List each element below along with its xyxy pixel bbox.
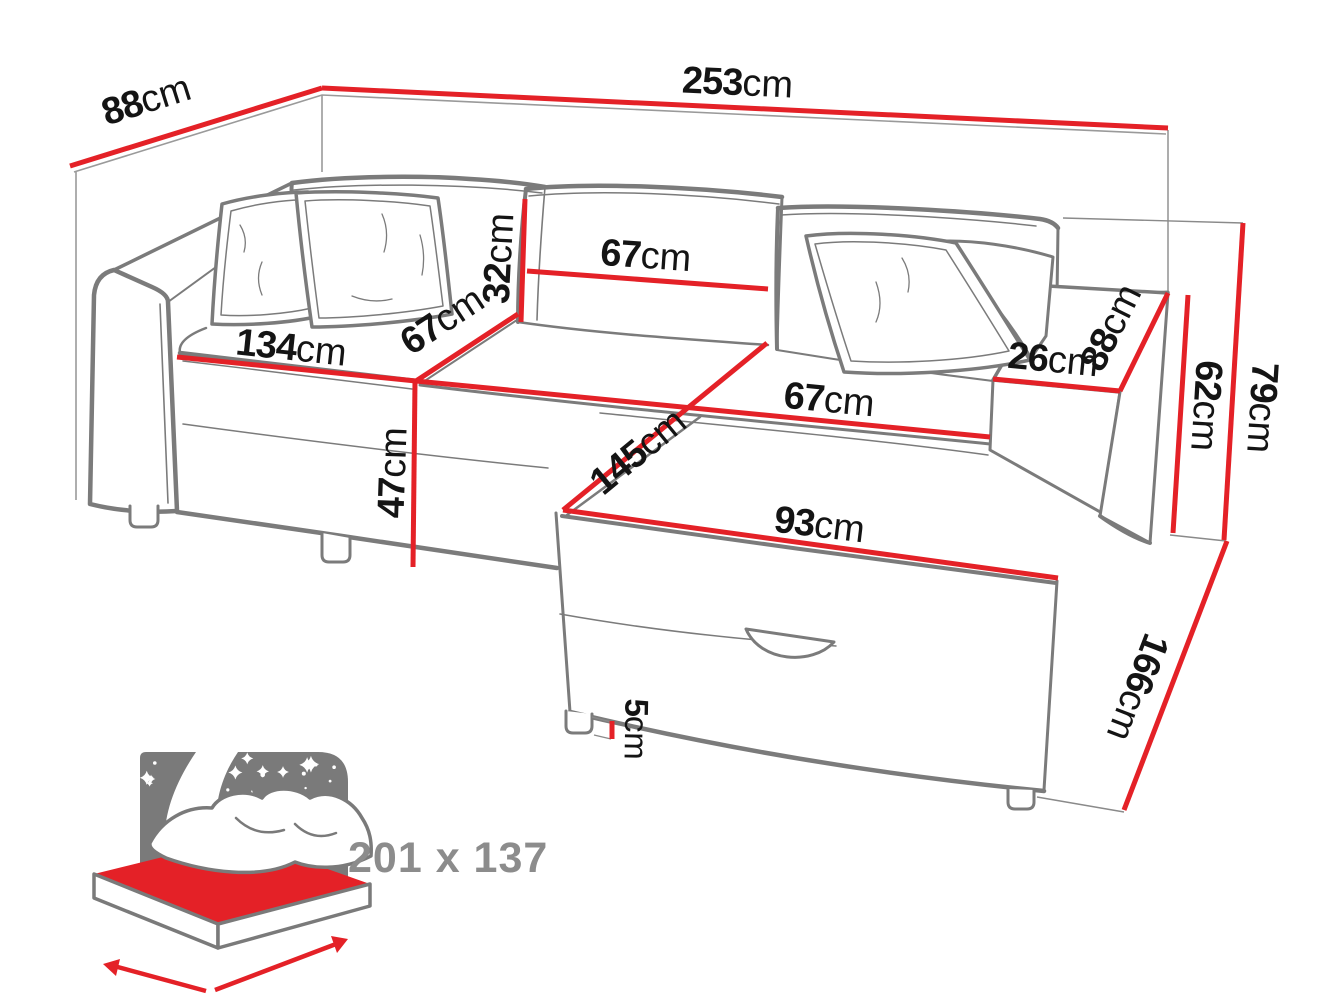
label-chaise-front-width: 93cm <box>772 499 867 552</box>
leg-chaise-left <box>566 711 592 733</box>
label-wall-depth-left: 88cm <box>97 67 196 134</box>
wall-top-edge <box>74 95 1166 172</box>
label-backrest-height: 32cm <box>476 212 523 305</box>
backrest-mid-bottom <box>518 322 768 345</box>
label-seat-height: 47cm <box>370 426 415 518</box>
extension-arm-base <box>1170 535 1226 541</box>
sleeping-function-icon: 201 x 137 <box>94 752 548 991</box>
seat-left-corner <box>180 328 206 353</box>
extension-total-height-top <box>1063 218 1243 223</box>
diagram-page: 88cm 253cm 32cm 67cm 134cm 67cm 47cm 67c… <box>0 0 1335 1001</box>
label-back-cushion-width: 67cm <box>599 232 693 280</box>
base-front-edge <box>177 512 557 568</box>
leg-front-left <box>130 506 158 527</box>
arrow-width-head <box>103 959 120 976</box>
chaise-left-edge <box>556 513 570 712</box>
backrest-right-top <box>778 207 1058 228</box>
sleeping-area-size: 201 x 137 <box>348 834 548 882</box>
front-face-seam <box>183 424 548 468</box>
bed-icon <box>94 789 371 991</box>
label-total-depth-right: 166cm <box>1098 628 1177 747</box>
label-chaise-seat-width: 67cm <box>782 375 877 426</box>
extension-chaise-foot <box>1037 797 1124 812</box>
chaise-section <box>420 385 1057 791</box>
backrest-seam-1 <box>537 187 545 320</box>
label-leg-height: 5cm <box>617 698 655 760</box>
label-total-height: 79cm <box>1238 361 1285 454</box>
leg-front-middle <box>322 533 350 562</box>
label-arm-height: 62cm <box>1182 359 1229 452</box>
sofa-dimension-diagram: 88cm 253cm 32cm 67cm 134cm 67cm 47cm 67c… <box>0 0 1335 1001</box>
backrest-mid-top <box>526 186 782 197</box>
label-wall-width: 253cm <box>681 60 794 107</box>
arrow-length-line <box>215 944 336 990</box>
right-arm-front-face <box>990 380 1120 513</box>
leg-chaise-right <box>1008 789 1034 809</box>
chaise-right-edge <box>1044 581 1057 790</box>
label-chaise-length: 145cm <box>582 400 694 503</box>
backrest-right-left-edge <box>776 208 778 349</box>
arrow-width-line <box>114 966 206 991</box>
drawer-handle <box>746 629 834 657</box>
dim-line-chaise-seat-width <box>416 381 990 437</box>
